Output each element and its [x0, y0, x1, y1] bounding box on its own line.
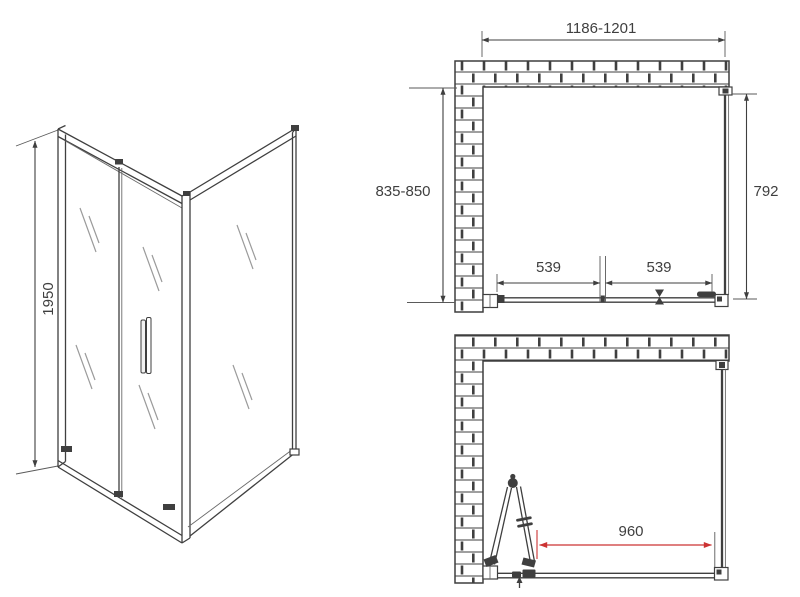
top-plan-view: 1186-1201 835-850 792 539 539	[375, 20, 778, 312]
shower-enclosure-technical-drawing: 1950	[0, 0, 800, 597]
side-panel-dimension: 792	[732, 94, 779, 299]
side-panel-dimension-label: 792	[753, 183, 778, 200]
opening-width-dimension: 960	[537, 523, 715, 567]
depth-dimension: 835-850	[375, 88, 457, 303]
door-handle-open-plan	[518, 518, 532, 526]
depth-dimension-label: 835-850	[375, 183, 430, 200]
brick-wall	[455, 335, 729, 583]
height-dimension: 1950	[16, 130, 58, 474]
door-panel-right-dimension-label: 539	[646, 259, 671, 276]
door-panel-left-dimension-label: 539	[536, 259, 561, 276]
door-handle	[141, 318, 151, 374]
height-dimension-label: 1950	[40, 282, 57, 315]
door-track	[483, 566, 715, 588]
brick-wall	[455, 61, 729, 312]
door-handle-plan	[697, 292, 716, 298]
open-door-plan-view: 960	[455, 335, 729, 588]
frame-hardware	[61, 125, 299, 510]
opening-width-dimension-label: 960	[618, 523, 643, 540]
side-panel-profile	[715, 87, 732, 307]
enclosure-frame	[58, 126, 296, 544]
door-hinge	[508, 478, 518, 488]
sliding-door-track	[483, 290, 716, 308]
overall-width-dimension: 1186-1201	[482, 20, 725, 57]
perspective-view: 1950	[16, 125, 299, 543]
side-panel-profile	[715, 361, 729, 581]
technical-drawing-canvas: 1950	[0, 0, 800, 597]
open-door-leaf	[484, 474, 537, 568]
overall-width-dimension-label: 1186-1201	[566, 20, 637, 37]
glass-reflections	[76, 208, 256, 429]
